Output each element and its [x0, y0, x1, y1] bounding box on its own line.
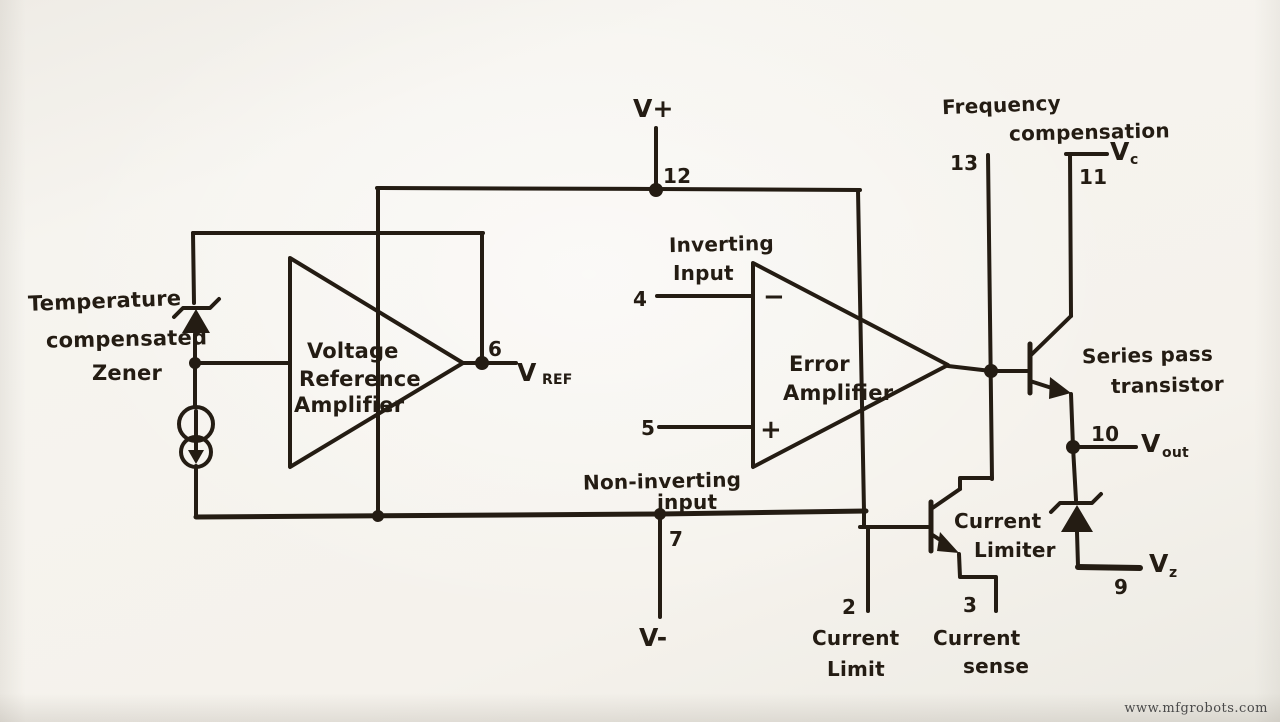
junction-dot-vout	[1066, 440, 1080, 454]
error-amp-label-line1: Error	[789, 352, 850, 376]
vref-label-base: V	[517, 358, 537, 387]
frequency-compensation-wire	[988, 155, 992, 479]
series-pass-transistor-symbol	[991, 316, 1071, 399]
top-rail-wire	[377, 188, 860, 190]
pin-12-number: 12	[663, 164, 691, 188]
junction-dot-left-drop	[372, 510, 384, 522]
vref-label-sub: REF	[542, 372, 573, 388]
current-sense-label-line1: Current	[933, 626, 1021, 650]
vc-collector-wire	[1070, 154, 1071, 316]
vout-label-sub: out	[1162, 445, 1189, 461]
current-limiter-label-line2: Limiter	[974, 538, 1056, 562]
vra-label-line1: Voltage	[307, 339, 399, 363]
component-labels: Temperature compensated Zener Voltage Re…	[28, 282, 1225, 562]
inverting-input-label-line1: Inverting	[669, 231, 774, 257]
pin-7-number: 7	[669, 527, 683, 551]
output-zener-anode-triangle	[1061, 505, 1093, 532]
vc-label-sub: c	[1130, 152, 1139, 168]
cl-emitter-arrowhead	[937, 532, 959, 553]
pin-13-number: 13	[950, 151, 978, 175]
vra-label-line3: Amplifier	[294, 393, 405, 417]
temperature-zener-label-line3: Zener	[92, 361, 162, 385]
pin-9-number: 9	[1114, 575, 1128, 599]
pin-10-number: 10	[1091, 422, 1119, 446]
junction-dot-v-plus	[649, 183, 663, 197]
vz-label-sub: z	[1169, 565, 1177, 581]
error-amp-supply-wire	[858, 190, 864, 511]
v-minus-label: V-	[639, 623, 667, 652]
frequency-compensation-label-line2: compensation	[1009, 118, 1170, 145]
vout-to-zener-wire	[1073, 447, 1076, 500]
current-limit-label-line1: Current	[812, 626, 900, 650]
current-sense-label-line2: sense	[963, 654, 1029, 678]
pin-6-number: 6	[488, 337, 502, 361]
watermark: www.mfgrobots.com	[1124, 701, 1268, 716]
junction-dot-vref	[475, 356, 489, 370]
vc-label-base: V	[1110, 137, 1130, 166]
series-pass-label-line2: transistor	[1111, 372, 1224, 398]
pin-4-number: 4	[633, 287, 647, 311]
pin-11-number: 11	[1079, 165, 1107, 189]
regulator-block-diagram: Temperature compensated Zener Voltage Re…	[0, 0, 1280, 722]
current-limit-label-line2: Limit	[827, 657, 885, 681]
inverting-minus-sign: −	[763, 282, 785, 312]
sp-collector	[1030, 316, 1071, 356]
schematic-paper: Temperature compensated Zener Voltage Re…	[0, 0, 1280, 722]
pin-3-number: 3	[963, 593, 977, 617]
bottom-rail-wire	[196, 511, 866, 517]
v-plus-label: V+	[633, 94, 674, 123]
vz-pin-wire	[1078, 567, 1140, 568]
vz-label-base: V	[1149, 549, 1169, 578]
non-inverting-plus-sign: +	[760, 415, 782, 445]
error-amp-label-line2: Amplifier	[783, 381, 894, 405]
zener-to-vz-wire	[1077, 532, 1078, 566]
zener-top-wire	[193, 233, 194, 303]
vra-label-line2: Reference	[299, 367, 421, 391]
non-inverting-input-label-line2: input	[657, 490, 717, 514]
current-source-symbol	[179, 407, 213, 467]
cl-collector	[931, 489, 960, 509]
inverting-input-label-line2: Input	[673, 261, 734, 285]
temperature-zener-label-line1: Temperature	[28, 286, 182, 316]
junction-dot-error-output	[984, 364, 998, 378]
junction-dot-zener-node	[189, 357, 201, 369]
sp-emitter-arrowhead	[1049, 377, 1071, 399]
pin-2-number: 2	[842, 595, 856, 619]
temperature-zener-label-line2: compensated	[46, 325, 208, 352]
current-limiter-label-line1: Current	[954, 509, 1042, 533]
series-pass-label-line1: Series pass	[1082, 342, 1213, 369]
frequency-compensation-label-line1: Frequency	[942, 91, 1062, 120]
limiter-collector-step-wire	[960, 478, 992, 489]
current-source-arrowhead	[188, 450, 204, 464]
vout-label-base: V	[1141, 429, 1161, 458]
pin-5-number: 5	[641, 416, 655, 440]
emitter-to-vout-wire	[1071, 394, 1073, 447]
